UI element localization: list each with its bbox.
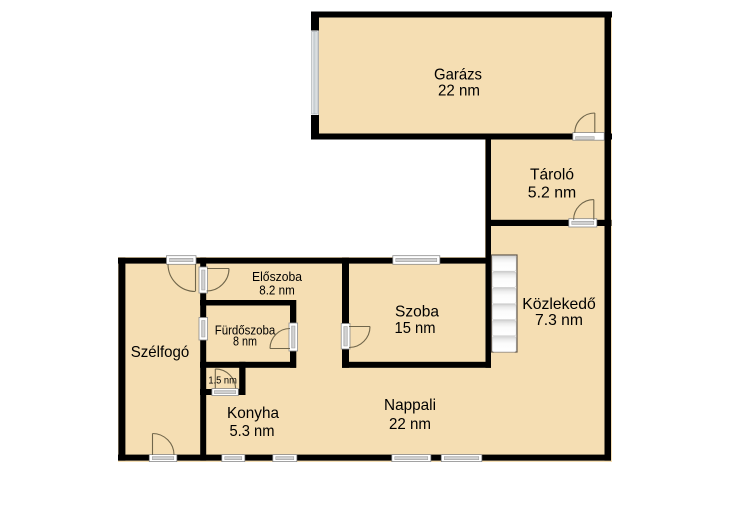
svg-text:Konyha: Konyha xyxy=(227,405,279,422)
svg-text:8.2 nm: 8.2 nm xyxy=(259,283,295,298)
svg-text:1.5 nm: 1.5 nm xyxy=(208,375,237,386)
svg-text:Nappali: Nappali xyxy=(384,397,436,414)
svg-text:7.3 nm: 7.3 nm xyxy=(535,312,583,329)
svg-text:22 nm: 22 nm xyxy=(389,416,431,433)
svg-text:Szoba: Szoba xyxy=(395,304,439,321)
svg-text:Szélfogó: Szélfogó xyxy=(131,344,190,361)
svg-text:Tároló: Tároló xyxy=(530,167,574,184)
svg-text:5.3 nm: 5.3 nm xyxy=(230,423,275,440)
svg-text:22 nm: 22 nm xyxy=(438,83,480,100)
svg-text:5.2 nm: 5.2 nm xyxy=(528,185,577,202)
svg-text:15 nm: 15 nm xyxy=(395,320,436,337)
svg-text:Közlekedő: Közlekedő xyxy=(522,296,596,313)
svg-text:Garázs: Garázs xyxy=(434,67,482,84)
svg-text:8 nm: 8 nm xyxy=(233,334,257,349)
